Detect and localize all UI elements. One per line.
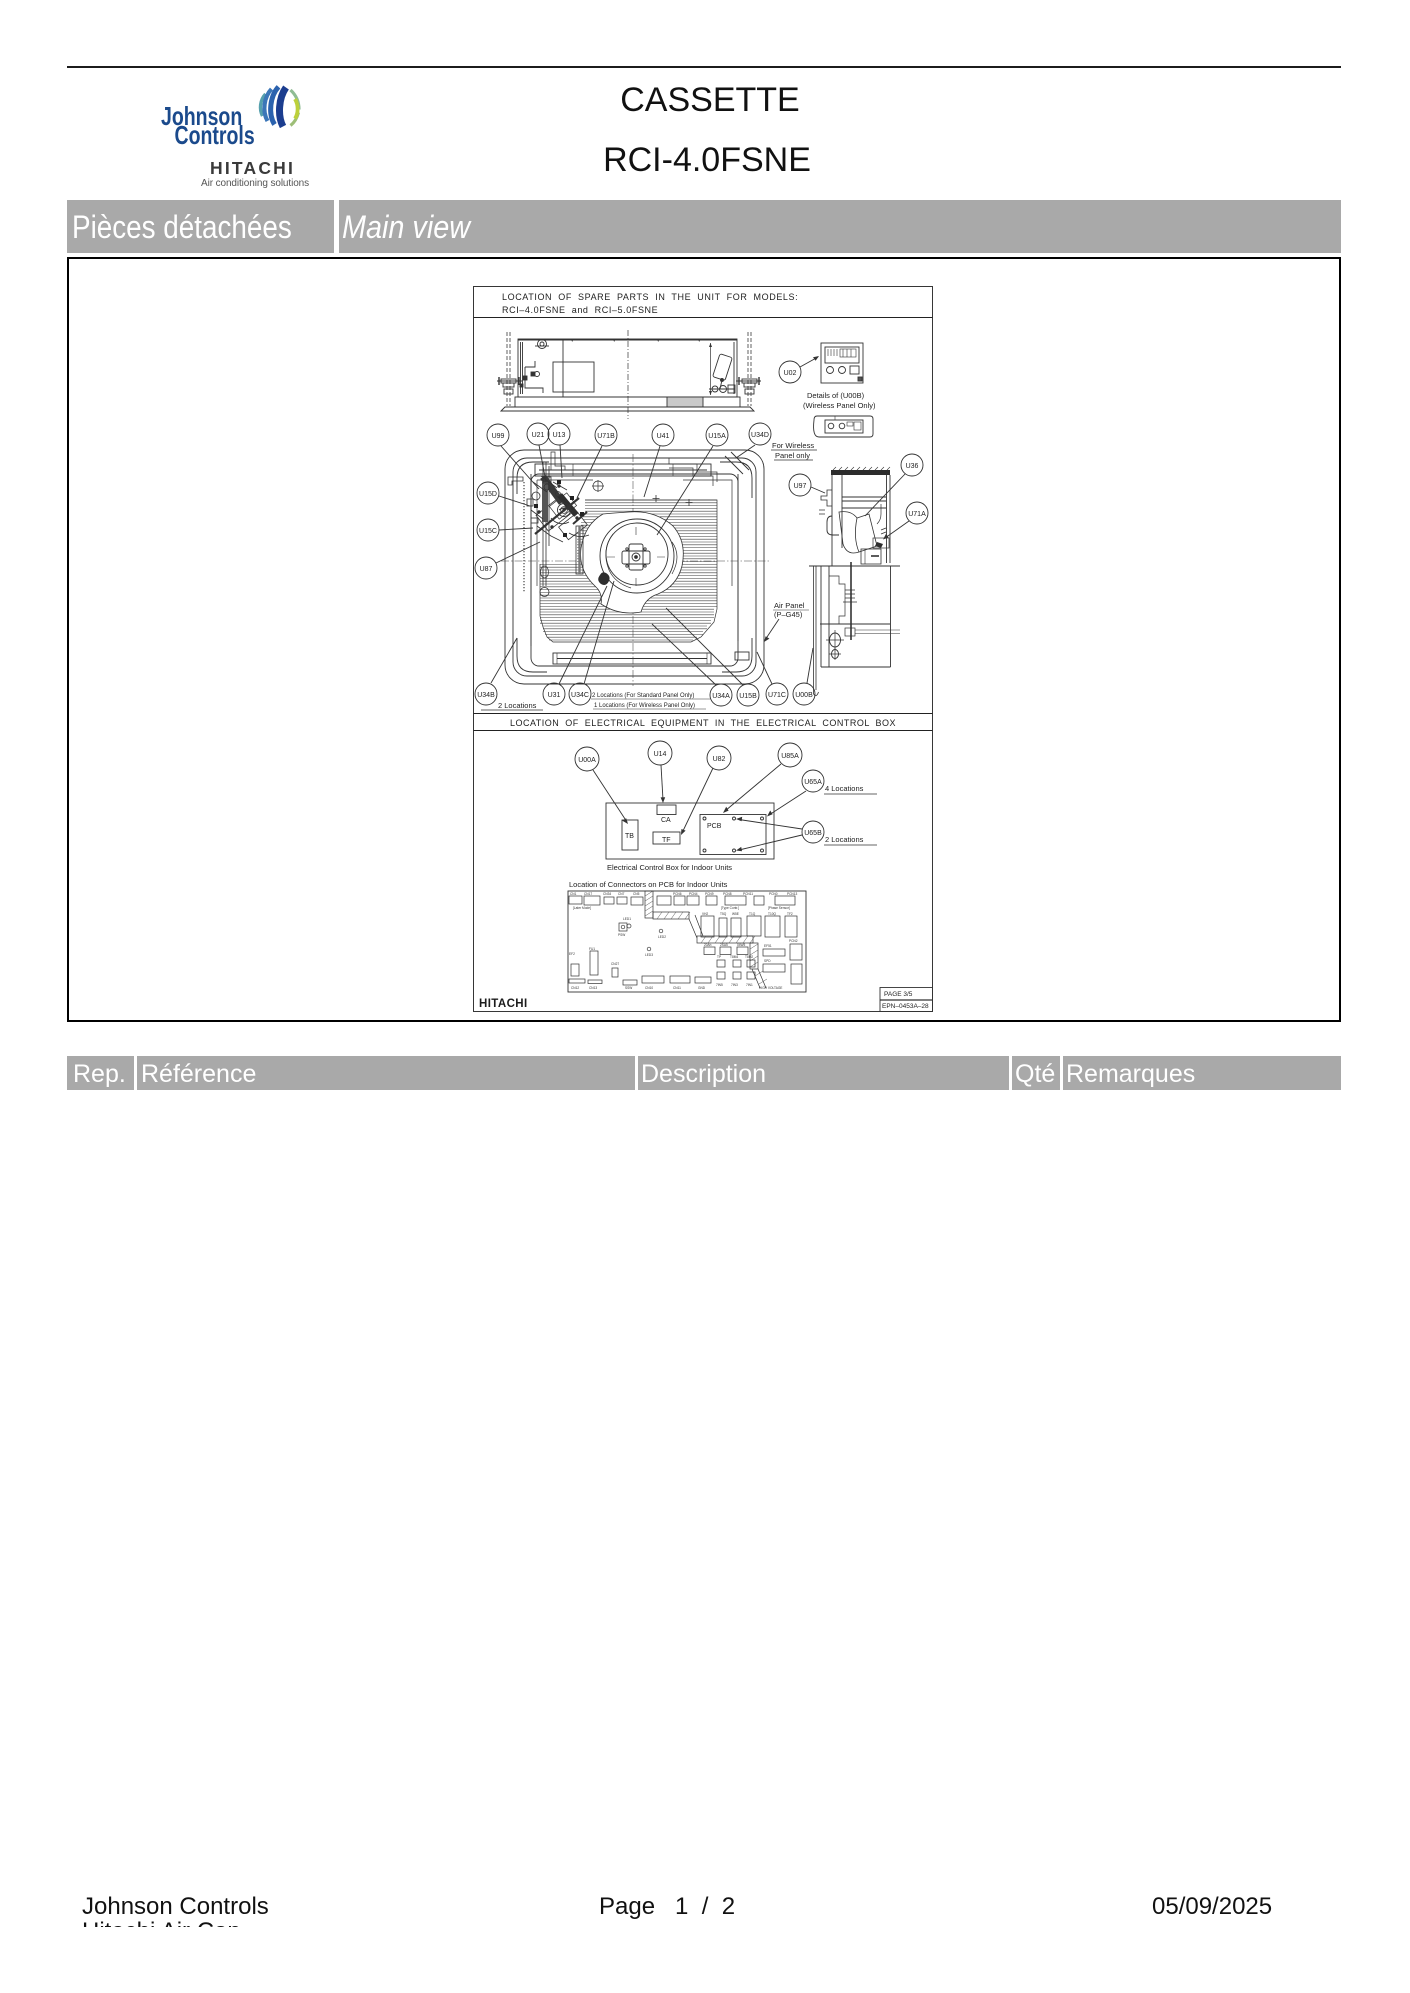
svg-text:LOCATION OF SPARE PARTS IN THE: LOCATION OF SPARE PARTS IN THE UNIT FOR … bbox=[502, 292, 798, 302]
svg-text:CN27: CN27 bbox=[611, 962, 619, 966]
svg-text:U87: U87 bbox=[480, 566, 493, 573]
svg-text:T10Q: T10Q bbox=[768, 912, 776, 916]
svg-text:7IN1: 7IN1 bbox=[746, 983, 753, 987]
svg-text:U15C: U15C bbox=[479, 528, 497, 535]
svg-text:U15B: U15B bbox=[739, 693, 757, 700]
svg-text:CN7: CN7 bbox=[618, 892, 625, 896]
svg-text:VH2: VH2 bbox=[702, 912, 708, 916]
svg-text:PCN13: PCN13 bbox=[787, 892, 798, 896]
svg-text:U15A: U15A bbox=[708, 433, 726, 440]
svg-text:RCI–4.0FSNE and RCI–5.0FSNE: RCI–4.0FSNE and RCI–5.0FSNE bbox=[502, 305, 658, 315]
svg-text:GND: GND bbox=[698, 986, 706, 990]
svg-text:[Later Mode]: [Later Mode] bbox=[573, 906, 591, 910]
svg-text:U15D: U15D bbox=[479, 491, 497, 498]
svg-text:20Ah: 20Ah bbox=[704, 943, 712, 947]
svg-text:2 Locations (For Standard Pane: 2 Locations (For Standard Panel Only) bbox=[592, 693, 694, 699]
svg-text:T8M2: T8M2 bbox=[745, 955, 753, 959]
svg-text:W5E: W5E bbox=[732, 912, 739, 916]
svg-text:U99: U99 bbox=[492, 433, 505, 440]
svg-text:U00A: U00A bbox=[578, 757, 596, 764]
svg-text:LED2: LED2 bbox=[658, 935, 666, 939]
svg-text:U85A: U85A bbox=[781, 753, 799, 760]
svg-text:U34C: U34C bbox=[571, 692, 589, 699]
svg-text:CN34: CN34 bbox=[603, 892, 611, 896]
svg-text:PCN6: PCN6 bbox=[673, 892, 682, 896]
svg-text:EPN–0453A–28: EPN–0453A–28 bbox=[882, 1003, 929, 1010]
svg-text:U31: U31 bbox=[548, 692, 561, 699]
svg-text:SPD: SPD bbox=[764, 959, 771, 963]
svg-text:PCN11: PCN11 bbox=[743, 892, 753, 896]
svg-text:PCB: PCB bbox=[707, 823, 722, 830]
svg-text:Location of Connectors on PCB: Location of Connectors on PCB for Indoor… bbox=[569, 880, 728, 889]
svg-text:04W5: 04W5 bbox=[737, 943, 746, 947]
svg-text:TF: TF bbox=[662, 837, 671, 844]
svg-text:U65B: U65B bbox=[804, 830, 822, 837]
svg-text:U97: U97 bbox=[794, 483, 807, 490]
svg-text:[Phase Sensor]: [Phase Sensor] bbox=[768, 906, 790, 910]
svg-text:1 Locations (For Wireless Pane: 1 Locations (For Wireless Panel Only) bbox=[594, 703, 695, 709]
svg-text:2 Locations: 2 Locations bbox=[825, 835, 864, 844]
svg-text:U34A: U34A bbox=[712, 693, 730, 700]
svg-text:EF2: EF2 bbox=[569, 952, 575, 956]
svg-text:U13: U13 bbox=[553, 432, 566, 439]
svg-text:PCN0: PCN0 bbox=[769, 892, 778, 896]
svg-text:7IN3: 7IN3 bbox=[731, 983, 738, 987]
svg-text:CN13: CN13 bbox=[589, 986, 597, 990]
svg-text:2SA5: 2SA5 bbox=[720, 943, 728, 947]
svg-text:TP: TP bbox=[717, 955, 721, 959]
svg-text:U71C: U71C bbox=[768, 692, 786, 699]
svg-text:(P–G45): (P–G45) bbox=[774, 610, 803, 619]
svg-text:U71B: U71B bbox=[597, 433, 615, 440]
svg-text:PCN9: PCN9 bbox=[705, 892, 714, 896]
svg-text:(Wireless Panel Only): (Wireless Panel Only) bbox=[803, 401, 876, 410]
svg-text:Panel only: Panel only bbox=[775, 451, 810, 460]
svg-text:U34B: U34B bbox=[477, 692, 495, 699]
svg-text:[Type Contr.]: [Type Contr.] bbox=[721, 906, 739, 910]
svg-text:U71A: U71A bbox=[908, 511, 926, 518]
svg-text:U65A: U65A bbox=[804, 779, 822, 786]
svg-text:T1Q: T1Q bbox=[749, 912, 756, 916]
svg-text:CN17: CN17 bbox=[584, 892, 592, 896]
svg-text:PCN4: PCN4 bbox=[689, 892, 698, 896]
svg-text:4 Locations: 4 Locations bbox=[825, 784, 864, 793]
svg-text:SSW: SSW bbox=[625, 986, 632, 990]
svg-text:CN10: CN10 bbox=[645, 986, 653, 990]
svg-text:Electrical Control Box for Ind: Electrical Control Box for Indoor Units bbox=[607, 863, 732, 872]
svg-text:Details of (U00B): Details of (U00B) bbox=[807, 391, 865, 400]
svg-text:PCN8: PCN8 bbox=[723, 892, 732, 896]
svg-text:U02: U02 bbox=[784, 370, 797, 377]
svg-text:7IN5: 7IN5 bbox=[716, 983, 723, 987]
svg-text:2 Locations: 2 Locations bbox=[498, 701, 537, 710]
svg-text:CN12: CN12 bbox=[571, 986, 579, 990]
svg-text:T5Q: T5Q bbox=[720, 912, 727, 916]
svg-text:PSW: PSW bbox=[618, 933, 625, 937]
svg-text:Air Panel: Air Panel bbox=[774, 601, 805, 610]
svg-text:CA: CA bbox=[661, 817, 671, 824]
svg-text:EF51: EF51 bbox=[764, 944, 772, 948]
svg-text:TB: TB bbox=[625, 833, 634, 840]
svg-text:PCN2: PCN2 bbox=[789, 939, 798, 943]
svg-text:U00B: U00B bbox=[795, 692, 813, 699]
svg-text:CN11: CN11 bbox=[673, 986, 681, 990]
svg-text:U36: U36 bbox=[906, 463, 919, 470]
svg-text:U21: U21 bbox=[532, 432, 545, 439]
svg-text:HIGH VOLTAGE: HIGH VOLTAGE bbox=[759, 986, 782, 990]
svg-text:HITACHI: HITACHI bbox=[479, 998, 528, 1010]
svg-text:U41: U41 bbox=[657, 433, 670, 440]
svg-text:TF2: TF2 bbox=[787, 912, 793, 916]
svg-text:LED1: LED1 bbox=[623, 917, 631, 921]
svg-text:U14: U14 bbox=[654, 751, 667, 758]
svg-text:PAGE 3/5: PAGE 3/5 bbox=[884, 991, 913, 998]
svg-text:LOCATION OF ELECTRICAL EQUIPME: LOCATION OF ELECTRICAL EQUIPMENT IN THE … bbox=[510, 718, 896, 728]
svg-text:U34D: U34D bbox=[751, 432, 769, 439]
svg-text:CN1: CN1 bbox=[570, 892, 577, 896]
svg-text:T8M4: T8M4 bbox=[730, 955, 738, 959]
svg-text:LED3: LED3 bbox=[645, 953, 653, 957]
svg-text:FU1: FU1 bbox=[589, 947, 595, 951]
svg-text:For Wireless: For Wireless bbox=[772, 441, 814, 450]
svg-text:CN5: CN5 bbox=[633, 892, 640, 896]
svg-text:U82: U82 bbox=[713, 756, 726, 763]
